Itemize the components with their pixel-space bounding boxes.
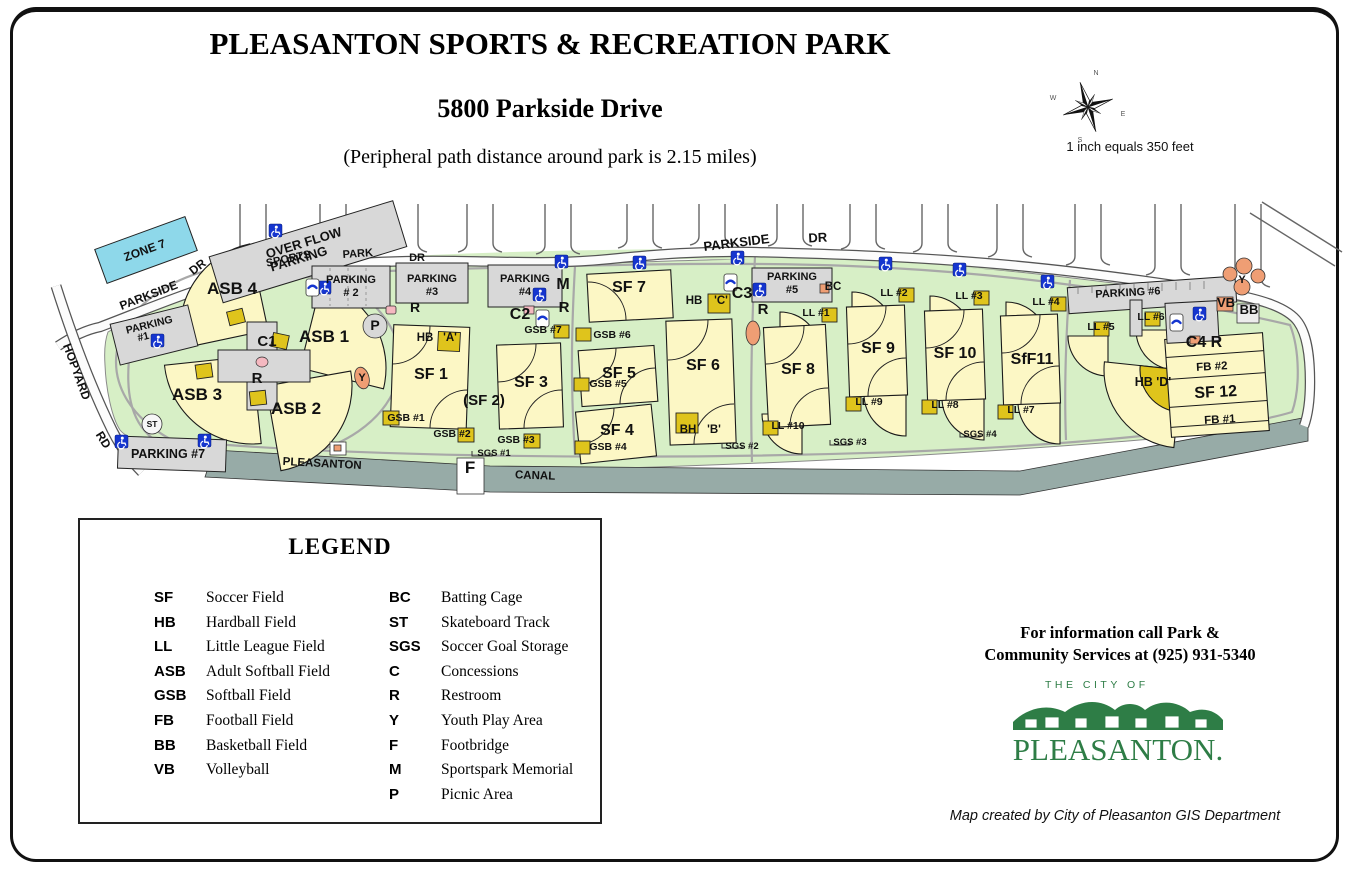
legend-abbr: VB bbox=[154, 758, 206, 783]
map-label: SF 1 bbox=[414, 366, 448, 383]
map-label: R bbox=[410, 299, 420, 315]
legend-abbr: ASB bbox=[154, 660, 206, 685]
legend-item: YYouth Play Area bbox=[389, 709, 600, 734]
legend-abbr: BB bbox=[154, 734, 206, 759]
legend-abbr: SGS bbox=[389, 635, 441, 660]
map-label: SF 6 bbox=[686, 357, 720, 374]
legend-desc: Footbridge bbox=[441, 737, 509, 754]
legend-item: ASBAdult Softball Field bbox=[154, 660, 365, 685]
map-label: GSB #1 bbox=[387, 412, 425, 424]
legend-desc: Football Field bbox=[206, 712, 293, 729]
info-line-2: Community Services at (925) 931-5340 bbox=[950, 644, 1290, 666]
compass-w: W bbox=[1050, 95, 1057, 102]
map-label: PARK bbox=[342, 247, 373, 261]
map-label: LL #8 bbox=[931, 399, 958, 411]
legend-desc: Little League Field bbox=[206, 638, 325, 655]
map-label: GSB #4 bbox=[589, 441, 627, 453]
map-label: (SF 2) bbox=[463, 392, 505, 409]
map-label: SGS #4 bbox=[963, 429, 997, 440]
compass-n: N bbox=[1093, 70, 1098, 77]
page: PLEASANTON SPORTS & RECREATION PARK 5800… bbox=[0, 0, 1348, 870]
legend-item: BBBasketball Field bbox=[154, 734, 365, 759]
legend-item: SFSoccer Field bbox=[154, 586, 365, 611]
legend-abbr: C bbox=[389, 660, 441, 685]
map-label: SF 3 bbox=[514, 374, 548, 391]
field-sf-7 bbox=[587, 270, 673, 322]
map-label: SF 4 bbox=[600, 422, 634, 439]
map-label: C3 bbox=[732, 285, 753, 302]
map-label: FB #1 bbox=[1204, 413, 1237, 427]
map-label: 'A' bbox=[443, 332, 457, 344]
map-label: LL #2 bbox=[880, 287, 907, 299]
map-label: #4 bbox=[519, 286, 532, 298]
map-label: SF 8 bbox=[781, 361, 815, 378]
map-label: PARKING bbox=[326, 274, 376, 286]
map-label: GSB #7 bbox=[524, 324, 562, 336]
legend-item: STSkateboard Track bbox=[389, 611, 600, 636]
legend-item: CConcessions bbox=[389, 660, 600, 685]
legend-desc: Basketball Field bbox=[206, 737, 307, 754]
c3-restroom bbox=[746, 321, 760, 345]
map-label: SGS #1 bbox=[477, 448, 511, 459]
map-label: SfF11 bbox=[1011, 351, 1054, 368]
legend-abbr: R bbox=[389, 684, 441, 709]
legend-abbr: SF bbox=[154, 586, 206, 611]
map-label: LL #1 bbox=[802, 307, 829, 319]
map-label: C1 bbox=[257, 333, 276, 350]
map-label: ASB 4 bbox=[207, 279, 258, 298]
legend-columns: SFSoccer FieldHBHardball FieldLLLittle L… bbox=[80, 586, 600, 807]
map-label: BH bbox=[680, 424, 697, 436]
path-distance-note: (Peripheral path distance around park is… bbox=[0, 146, 1100, 169]
legend-item: GSBSoftball Field bbox=[154, 684, 365, 709]
restroom-structure bbox=[386, 306, 396, 314]
logo-top-text: THE CITY OF bbox=[1045, 679, 1149, 691]
legend-item: FBFootball Field bbox=[154, 709, 365, 734]
map-label: SGS #2 bbox=[725, 441, 758, 452]
map-label: GSB #6 bbox=[593, 329, 631, 341]
map-label: LL #4 bbox=[1032, 296, 1059, 308]
legend-desc: Volleyball bbox=[206, 761, 269, 778]
legend-desc: Softball Field bbox=[206, 687, 291, 704]
map-label: P bbox=[370, 317, 379, 333]
map-label: #5 bbox=[786, 284, 798, 296]
map-label: ASB 1 bbox=[299, 327, 349, 346]
legend-desc: Concessions bbox=[441, 663, 519, 680]
map-label: BB bbox=[1240, 302, 1259, 317]
legend-desc: Skateboard Track bbox=[441, 614, 550, 631]
map-label: SF 9 bbox=[861, 340, 895, 357]
map-label: CANAL bbox=[515, 469, 556, 482]
map-label: SF 10 bbox=[934, 345, 977, 362]
legend-box: LEGEND SFSoccer FieldHBHardball FieldLLL… bbox=[78, 518, 602, 824]
map-label: Y bbox=[358, 372, 366, 384]
map-label: ST bbox=[147, 419, 159, 429]
legend-abbr: M bbox=[389, 758, 441, 783]
map-label: 'C' bbox=[714, 295, 728, 307]
legend-item: MSportspark Memorial bbox=[389, 758, 600, 783]
legend-title: LEGEND bbox=[80, 534, 600, 560]
map-label: PARKING bbox=[500, 273, 550, 285]
map-label: PARKING bbox=[767, 271, 817, 283]
page-subtitle: 5800 Parkside Drive bbox=[0, 94, 1100, 124]
map-credit: Map created by City of Pleasanton GIS De… bbox=[930, 808, 1300, 824]
pleasanton-city-logo: THE CITY OF PLEASANTON. bbox=[1005, 672, 1235, 772]
legend-abbr: Y bbox=[389, 709, 441, 734]
legend-item: HBHardball Field bbox=[154, 611, 365, 636]
info-line-1: For information call Park & bbox=[950, 622, 1290, 644]
park-map: ZONE 7OVER FLOWPARKINGPARKSIDEDRHOPYARDR… bbox=[0, 185, 1348, 520]
map-label: C2 bbox=[510, 306, 531, 323]
map-label: ASB 2 bbox=[271, 399, 321, 418]
map-label: R bbox=[559, 299, 570, 316]
map-label: ASB 3 bbox=[172, 385, 222, 404]
map-label: SGS #3 bbox=[833, 437, 866, 448]
map-label: LL #10 bbox=[771, 420, 804, 432]
map-label: DR bbox=[808, 229, 828, 245]
legend-abbr: HB bbox=[154, 611, 206, 636]
map-label: R bbox=[758, 301, 769, 318]
map-label: R bbox=[252, 370, 263, 387]
legend-abbr: P bbox=[389, 783, 441, 808]
legend-abbr: BC bbox=[389, 586, 441, 611]
map-label: F bbox=[465, 458, 475, 477]
info-text: For information call Park & Community Se… bbox=[950, 622, 1290, 666]
legend-desc: Youth Play Area bbox=[441, 712, 543, 729]
map-label: LL #7 bbox=[1007, 404, 1034, 416]
map-label: VB bbox=[1217, 295, 1235, 310]
map-label: HB 'D' bbox=[1135, 375, 1172, 389]
map-label: Y bbox=[1238, 274, 1246, 286]
legend-item: SGSSoccer Goal Storage bbox=[389, 635, 600, 660]
legend-desc: Soccer Field bbox=[206, 589, 284, 606]
logo-skyline bbox=[1013, 702, 1223, 730]
page-title: PLEASANTON SPORTS & RECREATION PARK bbox=[0, 26, 1100, 62]
map-label: SF 12 bbox=[1194, 383, 1238, 402]
legend-item: FFootbridge bbox=[389, 734, 600, 759]
compass-rose-icon: N E S W bbox=[1030, 62, 1150, 152]
legend-abbr: LL bbox=[154, 635, 206, 660]
compass-e: E bbox=[1121, 111, 1126, 118]
map-label: PARKING bbox=[407, 273, 457, 285]
legend-item: LLLittle League Field bbox=[154, 635, 365, 660]
legend-desc: Restroom bbox=[441, 687, 501, 704]
map-label: C4 R bbox=[1186, 334, 1223, 351]
map-label: GSB #5 bbox=[589, 378, 627, 390]
map-label: 'B' bbox=[707, 424, 721, 436]
legend-abbr: GSB bbox=[154, 684, 206, 709]
legend-abbr: ST bbox=[389, 611, 441, 636]
map-label: BC bbox=[825, 281, 842, 293]
legend-column: SFSoccer FieldHBHardball FieldLLLittle L… bbox=[80, 586, 365, 807]
legend-item: PPicnic Area bbox=[389, 783, 600, 808]
map-label: LL #9 bbox=[855, 396, 882, 408]
map-label: # 2 bbox=[343, 287, 358, 299]
c1-structure bbox=[256, 357, 268, 367]
map-label: DR bbox=[409, 252, 425, 264]
map-label: FB #2 bbox=[1196, 360, 1228, 374]
legend-abbr: F bbox=[389, 734, 441, 759]
legend-item: RRestroom bbox=[389, 684, 600, 709]
legend-desc: Adult Softball Field bbox=[206, 663, 330, 680]
map-label: LL #6 bbox=[1137, 311, 1164, 323]
legend-item: BCBatting Cage bbox=[389, 586, 600, 611]
map-label: GSB #2 bbox=[433, 428, 471, 440]
map-label: LL #3 bbox=[955, 290, 982, 302]
map-label: SF 7 bbox=[612, 279, 646, 296]
legend-column: BCBatting CageSTSkateboard TrackSGSSocce… bbox=[365, 586, 600, 807]
map-label: HB bbox=[686, 295, 703, 307]
legend-desc: Soccer Goal Storage bbox=[441, 638, 568, 655]
map-label: GSB #3 bbox=[497, 434, 535, 446]
legend-desc: Batting Cage bbox=[441, 589, 522, 606]
legend-desc: Sportspark Memorial bbox=[441, 761, 573, 778]
legend-desc: Picnic Area bbox=[441, 786, 513, 803]
legend-abbr: FB bbox=[154, 709, 206, 734]
map-label: #3 bbox=[426, 286, 438, 298]
map-label: LL #5 bbox=[1087, 321, 1114, 333]
legend-item: VBVolleyball bbox=[154, 758, 365, 783]
map-label: M bbox=[556, 276, 569, 293]
legend-desc: Hardball Field bbox=[206, 614, 296, 631]
map-label: HB bbox=[417, 332, 434, 344]
logo-name: PLEASANTON. bbox=[1013, 732, 1223, 767]
map-label: PARKING #7 bbox=[131, 447, 205, 461]
compass-s: S bbox=[1078, 137, 1083, 144]
